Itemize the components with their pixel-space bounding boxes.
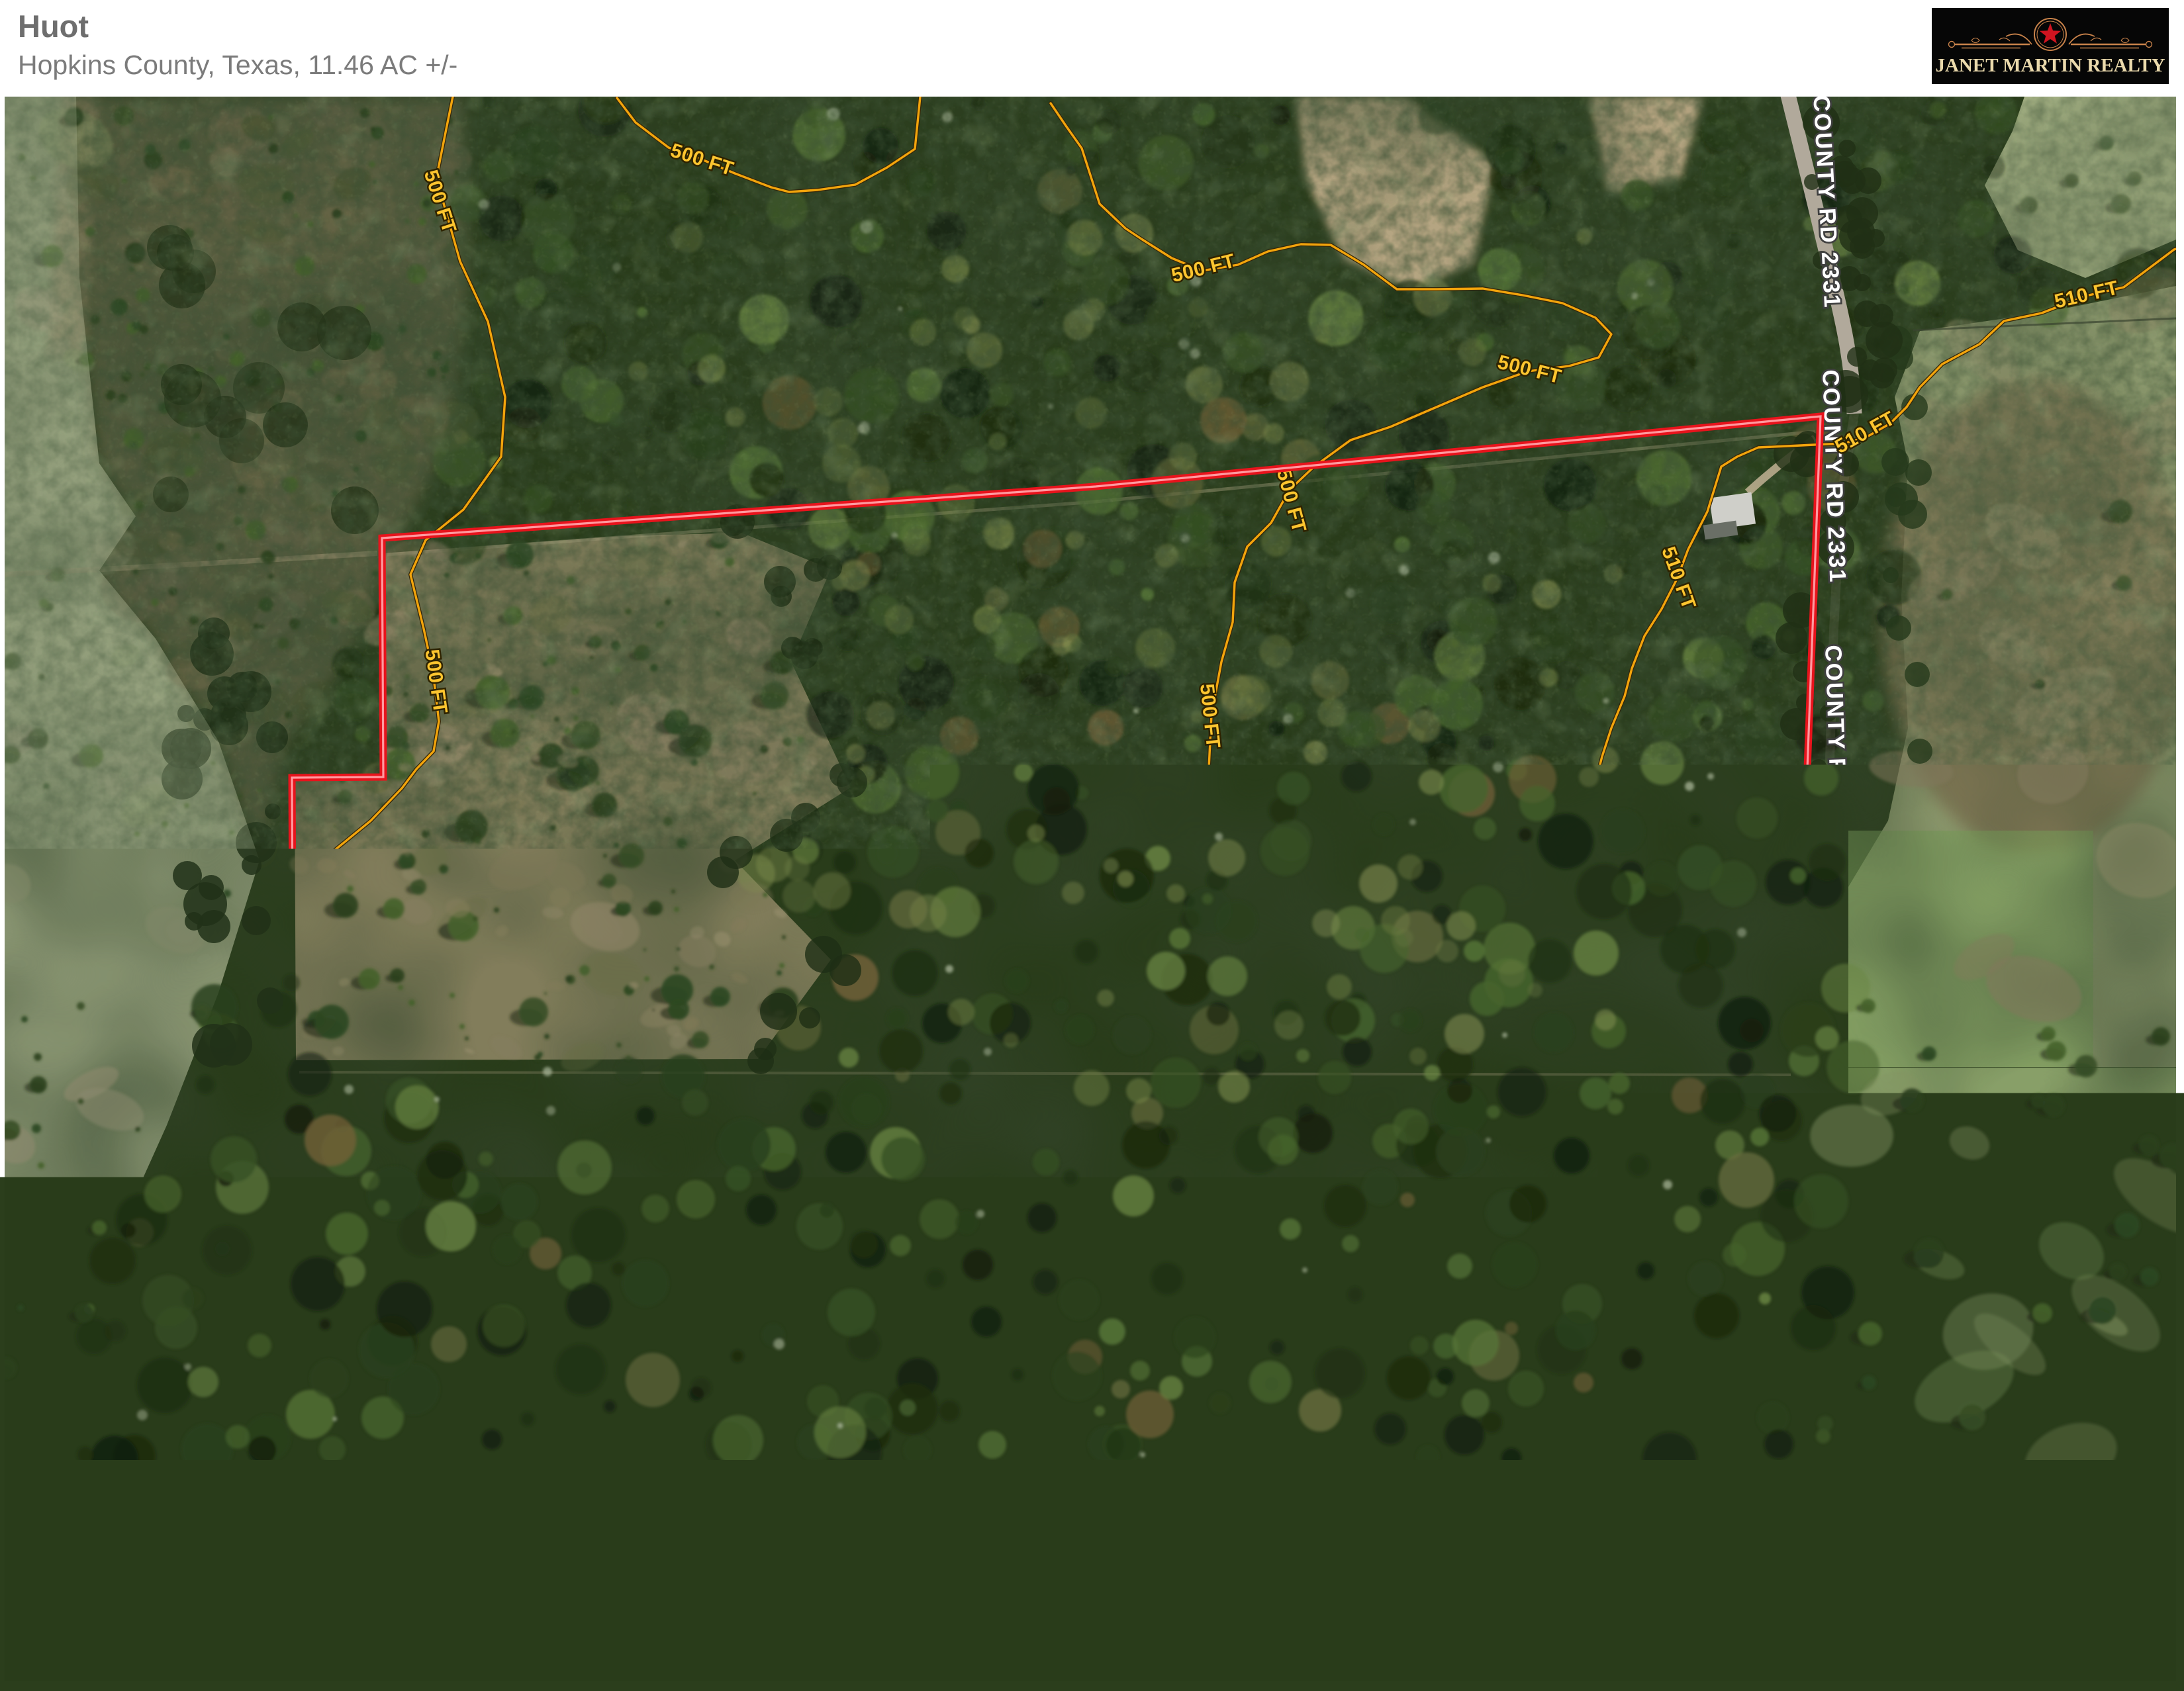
svg-text:510 FT: 510 FT — [1553, 788, 1580, 854]
svg-text:P: 903-885-1234: P: 903-885-1234 — [22, 1649, 175, 1672]
svg-text:300: 300 — [1968, 1386, 2015, 1417]
svg-text:Hopkins County, Texas, 11.46 A: Hopkins County, Texas, 11.46 AC +/- — [18, 50, 457, 80]
svg-text:www.janetmartinrealty.com: www.janetmartinrealty.com — [270, 1649, 514, 1672]
svg-text:200: 200 — [1837, 1386, 1883, 1417]
svg-text:sources deemed to be reliable.: sources deemed to be reliable. — [1781, 1630, 1962, 1645]
svg-text:100: 100 — [1706, 1386, 1752, 1417]
svg-text:JANET MARTIN REALTY: JANET MARTIN REALTY — [1935, 55, 2165, 76]
svg-text:as to the completeness or accu: as to the completeness or accuracy there… — [1781, 1661, 2038, 1675]
svg-text:Boundary: Boundary — [65, 1492, 124, 1508]
svg-text:M: M — [1721, 1623, 1764, 1681]
svg-text:0: 0 — [1584, 1386, 1599, 1417]
svg-text:Huot: Huot — [18, 9, 89, 44]
svg-text:400ft: 400ft — [2105, 1386, 2167, 1417]
svg-text:1325 S. Broadway, Sulphur Spri: 1325 S. Broadway, Sulphur Springs, TX 75… — [641, 1649, 1065, 1672]
svg-text:500 FT: 500 FT — [1196, 961, 1220, 1027]
svg-text:510 FT: 510 FT — [1556, 1046, 1580, 1111]
svg-text:The information contained here: The information contained herein was obt… — [1781, 1615, 2086, 1629]
svg-text:MapRight Services makes no war: MapRight Services makes no warranties or… — [1785, 1645, 2107, 1660]
svg-text:Janet Martin: Janet Martin — [22, 1620, 131, 1640]
